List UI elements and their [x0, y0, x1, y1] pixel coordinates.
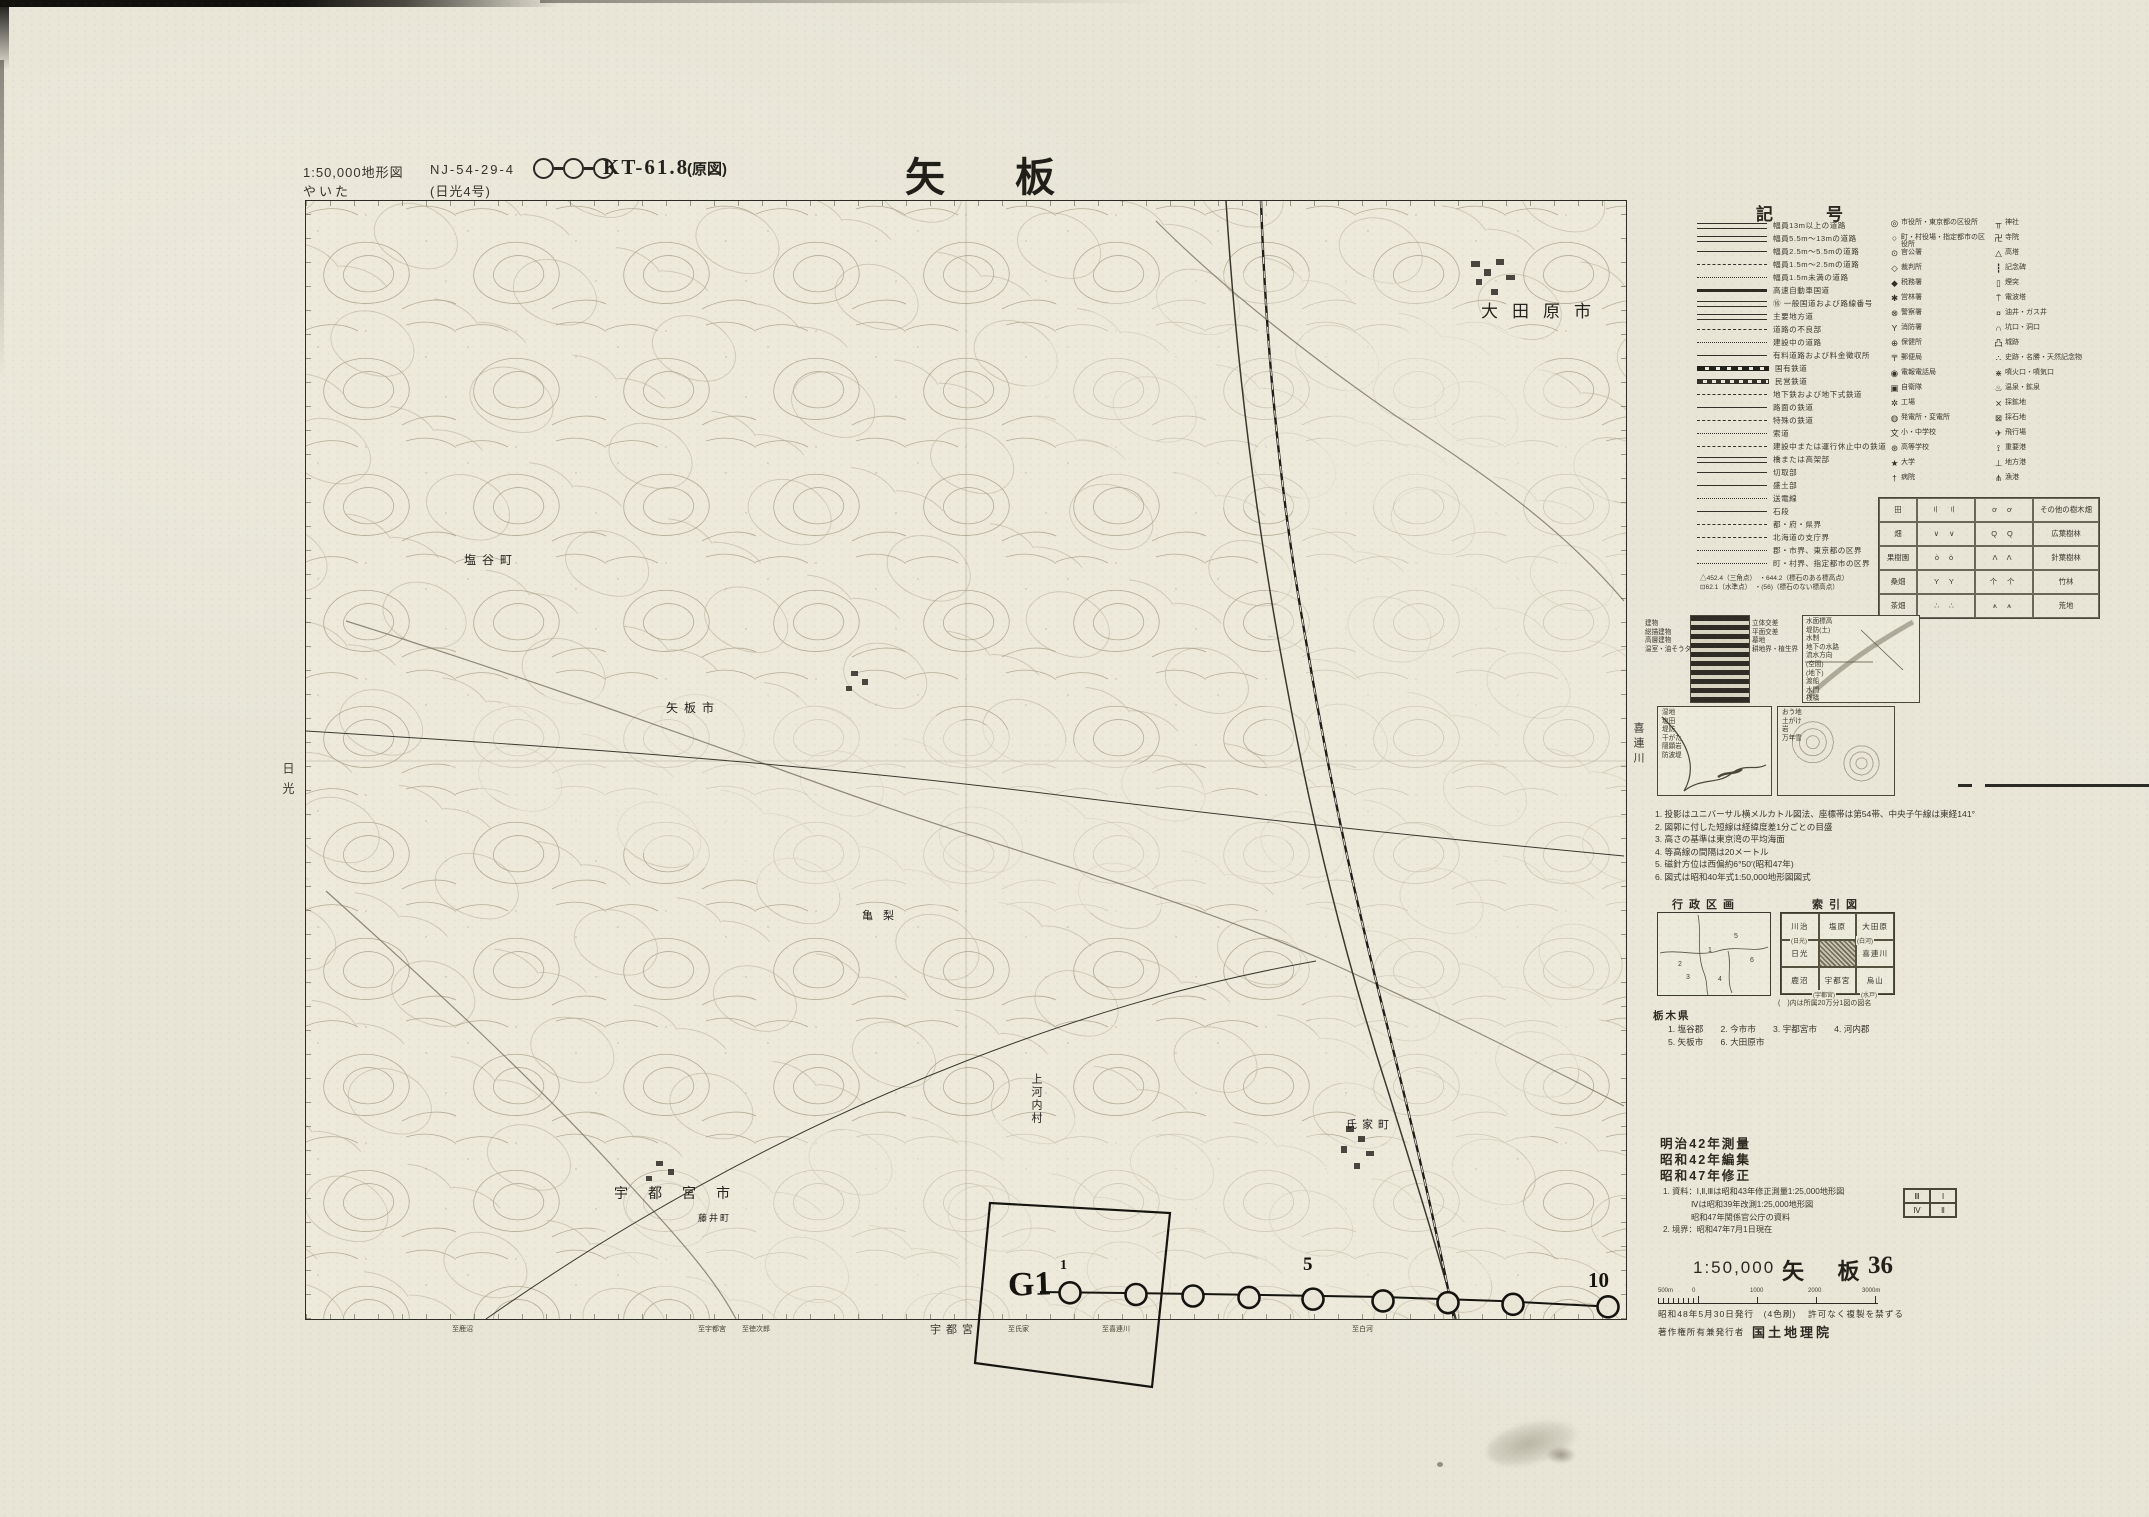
city-sample-label: 温室・油そうタンク等: [1645, 646, 1687, 655]
legend-road-label: 幅員1.5m未満の道路: [1773, 272, 1849, 283]
landuse-swatch: 个 个: [1975, 570, 2033, 594]
legend-symbol-row: ◇裁判所: [1888, 264, 1988, 279]
legend-symbol-row: ┇記念碑: [1992, 264, 2102, 279]
legend-symbol-icon: 卍: [1992, 234, 2005, 243]
legend-line-sample: [1697, 251, 1767, 252]
admin-region-number: 4: [1718, 976, 1722, 983]
legend-road-label: 石段: [1773, 506, 1789, 517]
legend-road-row: 索道: [1697, 427, 1887, 440]
legend-symbol-label: 採石地: [2005, 414, 2026, 421]
legend-symbol-icon: ○: [1888, 234, 1901, 243]
contour-sample-label: 万年雪: [1782, 735, 1802, 744]
annotation-circle: [1598, 1296, 1619, 1317]
legend-symbol-label: 電波塔: [2005, 294, 2026, 301]
quadrant-cell: Ⅰ: [1930, 1189, 1956, 1203]
legend-symbol-row: ∴史跡・名勝・天然記念物: [1992, 354, 2102, 369]
legend-road-label: 地下鉄および地下式鉄道: [1773, 389, 1862, 400]
legend-symbol-row: ⨯採鉱地: [1992, 399, 2102, 414]
scale-bar-label: 2000: [1808, 1288, 1821, 1294]
legend-line-sample: [1697, 420, 1767, 421]
index-grid-cell: 川治: [1781, 913, 1819, 940]
legend-road-row: 路面の鉄道: [1697, 401, 1887, 414]
legend-symbol-row: ✲工場: [1888, 399, 1988, 414]
annotation-circle: [1373, 1290, 1394, 1311]
legend-road-label: 建設中の道路: [1773, 337, 1822, 348]
legend-line-sample: [1697, 223, 1767, 229]
legend-symbol-icon: ◍: [1888, 414, 1901, 423]
publisher: 国土地理院: [1752, 1322, 1832, 1341]
legend-line-sample: [1697, 366, 1769, 372]
legend-symbol-icon: ◉: [1888, 369, 1901, 378]
legend-symbol-label: 電報電話局: [1901, 369, 1936, 376]
legend-symbol-icon: ∩: [1992, 324, 2005, 333]
legend-symbol-icon: ✲: [1888, 399, 1901, 408]
annotation-circle: [1126, 1284, 1147, 1305]
legend-symbol-row: †病院: [1888, 474, 1988, 489]
legend-line-sample: [1697, 472, 1767, 473]
contour-sample-label: おう地: [1782, 709, 1802, 718]
legend-notes: 1. 投影はユニバーサル横メルカトル図法、座標帯は第54帯、中央子午線は東経14…: [1655, 808, 2025, 884]
legend-symbol-icon: ✈: [1992, 429, 2005, 438]
legend-road-label: 索道: [1773, 428, 1789, 439]
landuse-swatch: ò ò: [1917, 546, 1975, 570]
copyright-note: 許可なく複製を禁ずる: [1808, 1308, 1904, 1320]
legend-road-row: 建設中の道路: [1697, 336, 1887, 349]
water-sample-label: 渡船: [1806, 678, 1839, 687]
legend-road-label: 都・府・県界: [1773, 519, 1822, 530]
legend-road-row: 送電線: [1697, 492, 1887, 505]
water-sample-label: 堤防(土): [1806, 627, 1839, 636]
legend-road-row: 幅員5.5m〜13mの道路: [1697, 232, 1887, 245]
annotation-circle: [1438, 1292, 1459, 1313]
legend-symbol-label: 税務署: [1901, 279, 1922, 286]
city-sample-label: 平面交差: [1752, 629, 1798, 638]
coast-sample-label: 堤防: [1662, 726, 1682, 735]
scale-bar-label: 0: [1692, 1288, 1695, 1294]
legend-symbol-icon: ▯: [1992, 279, 2005, 288]
coast-sample-label: 塩田: [1662, 718, 1682, 727]
legend-symbol-row: ★大学: [1888, 459, 1988, 474]
annotation-circle: [1503, 1294, 1524, 1315]
road-destination-note: 至喜連川: [1102, 1324, 1130, 1334]
legend-road-label: 盛土部: [1773, 480, 1797, 491]
legend-line-sample: [1697, 433, 1767, 434]
road-destination-note: 至徳次郎: [742, 1324, 770, 1334]
legend-symbol-icon: ⋇: [1992, 369, 2005, 378]
legend-symbol-icon: ⊛: [1888, 444, 1901, 453]
coast-sample-label: 防波堤: [1662, 752, 1682, 761]
legend-symbol-row: ⊙官公署: [1888, 249, 1988, 264]
legend-note: 1. 投影はユニバーサル横メルカトル図法、座標帯は第54帯、中央子午線は東経14…: [1655, 808, 2025, 821]
scale-bar-label: 3000m: [1862, 1288, 1880, 1294]
legend-symbol-row: ♨温泉・鉱泉: [1992, 384, 2102, 399]
legend-road-row: 幅員1.5m〜2.5mの道路: [1697, 258, 1887, 271]
legend-line-sample: [1697, 485, 1767, 486]
legend-road-label: 民営鉄道: [1775, 376, 1807, 387]
legend-symbol-label: 飛行場: [2005, 429, 2026, 436]
survey-history-line: 明治42年測量: [1660, 1136, 1751, 1152]
source-note-line: 昭和47年関係官公庁の資料: [1663, 1212, 1893, 1225]
legend-road-label: 送電線: [1773, 493, 1797, 504]
index-grid-cell: 宇都宮: [1819, 967, 1857, 994]
landuse-swatch: ⩚ ⩚: [1975, 594, 2033, 618]
legend-symbol-row: ⊗警察署: [1888, 309, 1988, 324]
legend-symbol-row: ✱営林署: [1888, 294, 1988, 309]
legend-water-sample: 水面標高堤防(土)水制地下の水路流水方向(空間)(地下)渡船水門桟橋: [1802, 615, 1920, 703]
legend-road-label: 町・村界、指定都市の区界: [1773, 558, 1870, 569]
road-destination-note: 至氏家: [1008, 1324, 1029, 1334]
legend-symbol-row: ⋇噴火口・噴気口: [1992, 369, 2102, 384]
annotation-circle: [1183, 1285, 1204, 1306]
landuse-swatch: ơ ơ: [1975, 498, 2033, 522]
legend-symbol-row: ⟟重要港: [1992, 444, 2102, 459]
legend-symbol-label: 病院: [1901, 474, 1915, 481]
legend-symbol-label: 高等学校: [1901, 444, 1929, 451]
index-map-note: ( )内は所属20万分1図の図名: [1778, 998, 1871, 1008]
legend-road-label: 有料道路および料金徴収所: [1773, 350, 1870, 361]
survey-history-line: 昭和42年編集: [1660, 1152, 1751, 1168]
legend-road-label: 幅員13m以上の道路: [1773, 220, 1846, 231]
legend-line-sample: [1697, 264, 1767, 265]
legend-city-sample-labels-right: 立体交差平面交差墓地耕地界・植生界: [1752, 620, 1798, 654]
legend-city-sample-labels-left: 建物総描建物高層建物温室・油そうタンク等: [1645, 620, 1687, 654]
landuse-swatch: Q Q: [1975, 522, 2033, 546]
legend-road-label: 幅員2.5m〜5.5mの道路: [1773, 246, 1859, 257]
legend-symbol-row: ⊥地方港: [1992, 459, 2102, 474]
imprint-scale: 1:50,000: [1693, 1258, 1775, 1278]
water-sample-label: (地下): [1806, 670, 1839, 679]
legend-symbol-icon: 凸: [1992, 339, 2005, 348]
annotation-point-1: 1: [1060, 1258, 1067, 1274]
legend-symbol-row: 卍寺院: [1992, 234, 2102, 249]
legend-symbol-label: 温泉・鉱泉: [2005, 384, 2040, 391]
legend-line-sample: [1697, 277, 1767, 278]
annotation-circle: [1060, 1282, 1081, 1303]
water-sample-label: (空間): [1806, 661, 1839, 670]
prefecture-list: 1. 塩谷郡 2. 今市市 3. 宇都宮市 4. 河内郡5. 矢板市 6. 大田…: [1668, 1023, 1998, 1048]
legend-symbol-icon: ⨯: [1992, 399, 2005, 408]
legend-line-sample: [1697, 457, 1767, 463]
admin-region-number: 3: [1686, 974, 1690, 981]
legend-symbol-label: 郵便局: [1901, 354, 1922, 361]
water-sample-label: 流水方向: [1806, 652, 1839, 661]
legend-symbol-label: 噴火口・噴気口: [2005, 369, 2054, 376]
index-grid-cell: 日光: [1781, 940, 1819, 967]
annotation-g1-label: G1: [1007, 1265, 1052, 1304]
legend-symbol-icon: ⊥: [1992, 459, 2005, 468]
legend-line-sample: [1697, 342, 1767, 343]
legend-road-label: 建設中または運行休止中の鉄道: [1773, 441, 1886, 452]
legend-symbol-label: 裁判所: [1901, 264, 1922, 271]
legend-road-label: ⑯ 一般国道および路線番号: [1773, 298, 1873, 309]
annotation-circle: [1303, 1289, 1324, 1310]
legend-symbol-label: 漁港: [2005, 474, 2019, 481]
legend-road-label: 幅員5.5m〜13mの道路: [1773, 233, 1857, 244]
legend-road-row: 高速自動車国道: [1697, 284, 1887, 297]
landuse-swatch: 〢 〢: [1917, 498, 1975, 522]
legend-symbol-row: ⋔漁港: [1992, 474, 2102, 489]
legend-line-sample: [1697, 329, 1767, 330]
imprint-sheet-name: 矢 板: [1782, 1254, 1874, 1286]
legend-road-row: 郡・市界、東京都の区界: [1697, 544, 1887, 557]
legend-road-label: 主要地方道: [1773, 311, 1813, 322]
legend-road-row: 北海道の支庁界: [1697, 531, 1887, 544]
legend-symbol-label: 消防署: [1901, 324, 1922, 331]
index-grid-cell: 喜連川: [1856, 940, 1894, 967]
contour-sample-label: 土がけ: [1782, 718, 1802, 727]
landuse-label: 竹林: [2033, 570, 2099, 594]
legend-symbol-row: 文小・中学校: [1888, 429, 1988, 444]
coast-sample-label: 湿地: [1662, 709, 1682, 718]
legend-line-sample: [1697, 446, 1767, 447]
legend-symbol-row: ¤油井・ガス井: [1992, 309, 2102, 324]
legend-symbol-row: ⍑電波塔: [1992, 294, 2102, 309]
admin-region-number: 2: [1678, 961, 1682, 968]
scale-bar: 500m0100020003000m: [1658, 1288, 1878, 1304]
legend-road-label: 幅員1.5m〜2.5mの道路: [1773, 259, 1859, 270]
legend-road-label: 北海道の支庁界: [1773, 532, 1830, 543]
legend-road-row: ⑯ 一般国道および路線番号: [1697, 297, 1887, 310]
road-destination-note: 至宇都宮: [698, 1324, 726, 1334]
legend-symbol-icon: ▣: [1888, 384, 1901, 393]
legend-line-sample: [1697, 524, 1767, 525]
publisher-label: 著作権所有兼発行者: [1658, 1326, 1744, 1338]
legend-road-row: 盛土部: [1697, 479, 1887, 492]
admin-map-title: 行政区画: [1672, 896, 1740, 912]
legend-symbol-label: 発電所・変電所: [1901, 414, 1950, 421]
city-sample-label: 総描建物: [1645, 629, 1687, 638]
legend-contour-sample: おう地土がけ岩万年雪: [1777, 706, 1895, 796]
legend-symbol-icon: ⊙: [1888, 249, 1901, 258]
landuse-label: 広葉樹林: [2033, 522, 2099, 546]
legend-line-sample: [1697, 289, 1767, 292]
legend-line-sample: [1697, 537, 1767, 538]
legend-symbol-icon: 文: [1888, 429, 1901, 438]
legend-symbol-label: 重要港: [2005, 444, 2026, 451]
legend-note: 5. 磁針方位は西偏約6°50′(昭和47年): [1655, 858, 2025, 871]
legend-line-sample: [1697, 394, 1767, 395]
legend-symbol-icon: ◎: [1888, 219, 1901, 228]
legend-road-row: 都・府・県界: [1697, 518, 1887, 531]
water-sample-label: 桟橋: [1806, 695, 1839, 703]
legend-road-row: 特殊の鉄道: [1697, 414, 1887, 427]
source-note-line: 2. 境界：昭和47年7月1日現在: [1663, 1224, 1893, 1237]
quadrant-cell: Ⅲ: [1904, 1189, 1930, 1203]
water-sample-label: 水面標高: [1806, 618, 1839, 627]
legend-road-label: 郡・市界、東京都の区界: [1773, 545, 1862, 556]
city-sample-label: 耕地界・植生界: [1752, 646, 1798, 655]
legend-road-row: 民営鉄道: [1697, 375, 1887, 388]
legend-symbol-label: 寺院: [2005, 234, 2019, 241]
water-sample-label: 水制: [1806, 635, 1839, 644]
legend-symbol-icon: ✱: [1888, 294, 1901, 303]
legend-note: 3. 高さの基準は東京湾の平均海面: [1655, 833, 2025, 846]
legend-symbol-label: 小・中学校: [1901, 429, 1936, 436]
legend-road-label: 高速自動車国道: [1773, 285, 1830, 296]
legend-symbol-label: 大学: [1901, 459, 1915, 466]
source-note-line: Ⅳは昭和39年改測1:25,000地形図: [1663, 1199, 1893, 1212]
index-grid-cell: 鹿沼: [1781, 967, 1819, 994]
legend-road-label: 切取部: [1773, 467, 1797, 478]
admin-region-number: 6: [1750, 957, 1754, 964]
legend-city-sample: [1690, 615, 1750, 703]
legend-line-sample: [1697, 550, 1767, 551]
legend-symbol-row: ○町・村役場・指定都市の区役所: [1888, 234, 1988, 249]
legend-road-row: 幅員1.5m未満の道路: [1697, 271, 1887, 284]
road-destination-note: 至鹿沼: [452, 1324, 473, 1334]
legend-symbol-row: △高塔: [1992, 249, 2102, 264]
legend-coast-sample: 湿地塩田堤防干がた隠顕岩防波堤: [1657, 706, 1772, 796]
landuse-label: 畑: [1879, 522, 1917, 546]
legend-symbol-icon: ⊠: [1992, 414, 2005, 423]
coast-sample-label: 隠顕岩: [1662, 743, 1682, 752]
prefecture-line: 5. 矢板市 6. 大田原市: [1668, 1036, 1998, 1049]
legend-landuse-grid: 田〢 〢ơ ơその他の樹木畑畑∨ ∨Q Q広葉樹林果樹園ò òΛ Λ針葉樹林桑畑…: [1878, 497, 2100, 619]
quadrant-cell: Ⅱ: [1930, 1203, 1956, 1217]
legend-symbol-row: ⊛高等学校: [1888, 444, 1988, 459]
legend-symbol-label: 史跡・名勝・天然記念物: [2005, 354, 2082, 361]
legend-symbol-icon: △: [1992, 249, 2005, 258]
legend-road-row: 国有鉄道: [1697, 362, 1887, 375]
legend-symbol-list-a: ◎市役所・東京都の区役所○町・村役場・指定都市の区役所⊙官公署◇裁判所◆税務署✱…: [1888, 219, 1988, 489]
legend-line-sample: [1697, 379, 1769, 384]
legend-symbol-row: ▣自衛隊: [1888, 384, 1988, 399]
legend-symbol-row: ∩坑口・洞口: [1992, 324, 2102, 339]
city-sample-label: 建物: [1645, 620, 1687, 629]
legend-symbol-label: 坑口・洞口: [2005, 324, 2040, 331]
legend-symbol-icon: ⟟: [1992, 444, 2005, 453]
index-grid-cell: 塩原: [1819, 913, 1857, 940]
contour-sample-label: 岩: [1782, 726, 1802, 735]
scanned-topo-map-sheet: 1:50,000地形図 NJ-54-29-4 やいた (日光4号) KT-61.…: [0, 0, 2149, 1517]
legend-symbol-icon: †: [1888, 474, 1901, 483]
index-map-title: 索引図: [1812, 896, 1863, 912]
landuse-swatch: ∴ ∴: [1917, 594, 1975, 618]
legend-road-row: 幅員2.5m〜5.5mの道路: [1697, 245, 1887, 258]
legend-line-sample: [1697, 314, 1767, 320]
legend-symbol-label: 採鉱地: [2005, 399, 2026, 406]
admin-region-number: 5: [1734, 933, 1738, 940]
legend-road-row: 主要地方道: [1697, 310, 1887, 323]
legend-symbol-label: 煙突: [2005, 279, 2019, 286]
legend-symbol-label: 城跡: [2005, 339, 2019, 346]
imprint-sheet-number: 36: [1868, 1252, 1893, 1280]
landuse-label: 桑畑: [1879, 570, 1917, 594]
landuse-label: その他の樹木畑: [2033, 498, 2099, 522]
legend-note: 4. 等高線の間隔は20メートル: [1655, 846, 2025, 859]
legend-symbol-row: ◍発電所・変電所: [1888, 414, 1988, 429]
legend-symbol-label: 地方港: [2005, 459, 2026, 466]
legend-road-row: 切取部: [1697, 466, 1887, 479]
city-sample-label: 立体交差: [1752, 620, 1798, 629]
legend-line-sample: [1697, 407, 1767, 408]
legend-symbol-row: ✈飛行場: [1992, 429, 2102, 444]
legend-symbol-label: 官公署: [1901, 249, 1922, 256]
admin-map: 123456: [1657, 912, 1771, 996]
scale-bar-label: 1000: [1750, 1288, 1763, 1294]
legend-line-sample: [1697, 236, 1767, 242]
legend-symbol-icon: ⊗: [1888, 309, 1901, 318]
legend-symbol-label: 町・村役場・指定都市の区役所: [1901, 234, 1988, 248]
legend-road-label: 路面の鉄道: [1773, 402, 1813, 413]
annotation-circle: [1239, 1287, 1260, 1308]
legend-road-label: 道路の不良部: [1773, 324, 1822, 335]
legend-symbol-icon: ⋔: [1992, 474, 2005, 483]
prefecture-name: 栃木県: [1653, 1008, 1691, 1023]
legend-symbol-row: ⊕保健所: [1888, 339, 1988, 354]
legend-symbol-icon: ♨: [1992, 384, 2005, 393]
sheet-quadrant-diagram: ⅢⅠⅣⅡ: [1903, 1188, 1957, 1218]
legend-symbol-label: 警察署: [1901, 309, 1922, 316]
legend-symbol-row: ◎市役所・東京都の区役所: [1888, 219, 1988, 234]
landuse-label: 田: [1879, 498, 1917, 522]
legend-road-label: 特殊の鉄道: [1773, 415, 1813, 426]
legend-note: 2. 図郭に付した短線は経緯度差1分ごとの目盛: [1655, 821, 2025, 834]
legend-road-row: 有料道路および料金徴収所: [1697, 349, 1887, 362]
legend-symbol-row: ╥神社: [1992, 219, 2102, 234]
legend-symbol-row: 〒郵便局: [1888, 354, 1988, 369]
landuse-label: 針葉樹林: [2033, 546, 2099, 570]
legend-symbol-row: ◉電報電話局: [1888, 369, 1988, 384]
survey-history: 明治42年測量昭和42年編集昭和47年修正: [1660, 1136, 1751, 1184]
legend-symbol-icon: ∴: [1992, 354, 2005, 363]
index-grid-cell: 矢板: [1819, 940, 1857, 967]
annotation-point-5: 5: [1303, 1254, 1313, 1276]
legend-line-sample: [1697, 563, 1767, 564]
legend-symbol-icon: ╥: [1992, 219, 2005, 228]
legend-symbol-row: ◆税務署: [1888, 279, 1988, 294]
legend-symbol-row: 凸城跡: [1992, 339, 2102, 354]
road-destination-note: 至白河: [1352, 1324, 1373, 1334]
landuse-swatch: Y Y: [1917, 570, 1975, 594]
survey-history-line: 昭和47年修正: [1660, 1168, 1751, 1184]
legend-road-list: 幅員13m以上の道路幅員5.5m〜13mの道路幅員2.5m〜5.5mの道路幅員1…: [1697, 219, 1887, 570]
source-note-line: 1. 資料：Ⅰ,Ⅱ,Ⅲは昭和43年修正測量1:25,000地形図: [1663, 1186, 1893, 1199]
legend-symbol-icon: ★: [1888, 459, 1901, 468]
legend-symbol-label: 油井・ガス井: [2005, 309, 2047, 316]
quadrant-cell: Ⅳ: [1904, 1203, 1930, 1217]
legend-symbol-row: ⊠採石地: [1992, 414, 2102, 429]
legend-symbol-row: ▯煙突: [1992, 279, 2102, 294]
admin-region-number: 1: [1708, 947, 1712, 954]
legend-symbol-label: 高塔: [2005, 249, 2019, 256]
legend-road-row: 町・村界、指定都市の区界: [1697, 557, 1887, 570]
legend-road-label: 橋または高架部: [1773, 454, 1830, 465]
legend-symbol-label: 自衛隊: [1901, 384, 1922, 391]
legend-symbol-icon: ¤: [1992, 309, 2005, 318]
index-grid-cell: 大田原: [1856, 913, 1894, 940]
legend-symbol-icon: Y: [1888, 324, 1901, 333]
legend-symbol-label: 記念碑: [2005, 264, 2026, 271]
legend-road-row: 建設中または運行休止中の鉄道: [1697, 440, 1887, 453]
city-sample-label: 高層建物: [1645, 637, 1687, 646]
source-notes: 1. 資料：Ⅰ,Ⅱ,Ⅲは昭和43年修正測量1:25,000地形図Ⅳは昭和39年改…: [1663, 1186, 1893, 1237]
annotation-point-10: 10: [1588, 1268, 1609, 1293]
legend-symbol-icon: ⍑: [1992, 294, 2005, 303]
legend-symbol-label: 工場: [1901, 399, 1915, 406]
legend-symbol-icon: ┇: [1992, 264, 2005, 273]
legend-symbol-icon: ◇: [1888, 264, 1901, 273]
legend-line-sample: [1697, 511, 1767, 512]
legend-symbol-row: Y消防署: [1888, 324, 1988, 339]
legend-road-row: 地下鉄および地下式鉄道: [1697, 388, 1887, 401]
publication-date: 昭和48年5月30日発行 (4色刷): [1658, 1308, 1796, 1320]
legend-symbol-icon: ⊕: [1888, 339, 1901, 348]
landuse-label: 果樹園: [1879, 546, 1917, 570]
index-map: 川治塩原大田原日光矢板喜連川鹿沼宇都宮烏山 (日光)(白河)(宇都宮)(水戸): [1780, 912, 1895, 995]
legend-road-row: 道路の不良部: [1697, 323, 1887, 336]
legend-symbol-list-b: ╥神社卍寺院△高塔┇記念碑▯煙突⍑電波塔¤油井・ガス井∩坑口・洞口凸城跡∴史跡・…: [1992, 219, 2102, 489]
